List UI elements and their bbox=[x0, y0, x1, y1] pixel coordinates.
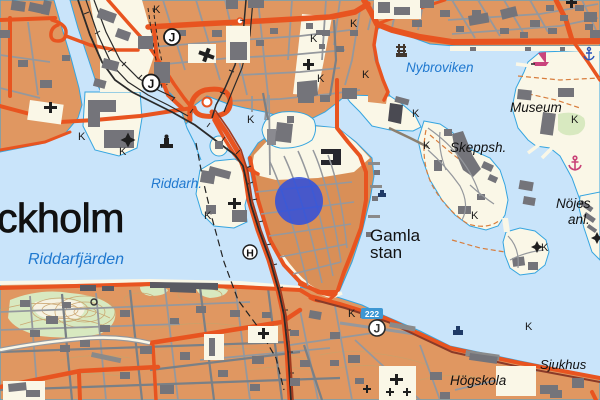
svg-text:K: K bbox=[423, 140, 431, 152]
svg-text:K: K bbox=[350, 18, 358, 30]
svg-text:Riddarh.: Riddarh. bbox=[151, 176, 202, 191]
svg-text:K: K bbox=[571, 114, 579, 126]
svg-text:K: K bbox=[119, 146, 127, 158]
svg-text:K: K bbox=[247, 114, 255, 126]
svg-text:Sjukhus: Sjukhus bbox=[540, 357, 587, 372]
svg-text:anl.: anl. bbox=[568, 212, 590, 227]
svg-text:Nöjes: Nöjes bbox=[556, 196, 591, 211]
svg-text:H: H bbox=[246, 248, 254, 260]
svg-text:J: J bbox=[169, 31, 176, 45]
svg-text:J: J bbox=[148, 77, 155, 91]
svg-text:K: K bbox=[471, 210, 479, 222]
svg-text:K: K bbox=[204, 210, 212, 222]
svg-text:222: 222 bbox=[365, 309, 379, 319]
svg-text:K: K bbox=[348, 308, 356, 320]
svg-text:stan: stan bbox=[370, 243, 402, 262]
svg-text:Skeppsh.: Skeppsh. bbox=[450, 140, 506, 155]
svg-text:K: K bbox=[78, 131, 86, 143]
svg-text:ckholm: ckholm bbox=[0, 195, 124, 241]
svg-text:Museum: Museum bbox=[510, 100, 562, 115]
svg-text:K: K bbox=[310, 33, 318, 45]
svg-text:J: J bbox=[374, 322, 381, 336]
svg-text:K: K bbox=[317, 73, 325, 85]
svg-text:K: K bbox=[153, 4, 161, 16]
svg-text:K: K bbox=[541, 242, 549, 254]
svg-text:Nybroviken: Nybroviken bbox=[406, 60, 474, 75]
svg-text:Riddarfjärden: Riddarfjärden bbox=[28, 251, 124, 268]
svg-text:K: K bbox=[362, 69, 370, 81]
svg-text:K: K bbox=[525, 321, 533, 333]
svg-text:Högskola: Högskola bbox=[450, 373, 507, 388]
svg-text:K: K bbox=[412, 108, 420, 120]
